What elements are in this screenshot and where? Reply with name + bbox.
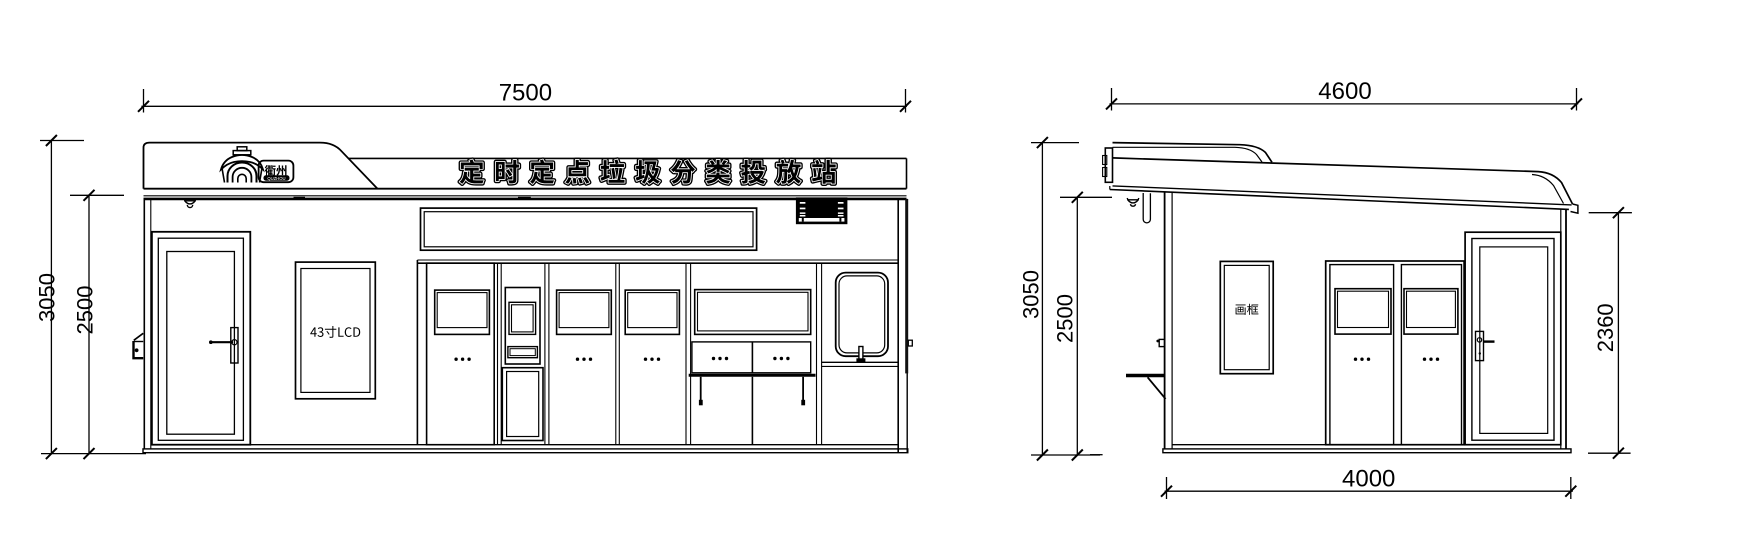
svg-text:4600: 4600 [1318, 78, 1371, 105]
svg-text:3050: 3050 [35, 273, 60, 322]
svg-text:2500: 2500 [1053, 294, 1078, 343]
svg-text:QUZHOU: QUZHOU [267, 176, 285, 181]
svg-text:3050: 3050 [1018, 270, 1043, 319]
svg-text:2360: 2360 [1593, 303, 1618, 352]
svg-text:2500: 2500 [73, 286, 98, 335]
svg-text:7500: 7500 [499, 80, 552, 107]
svg-text:4000: 4000 [1342, 466, 1395, 493]
